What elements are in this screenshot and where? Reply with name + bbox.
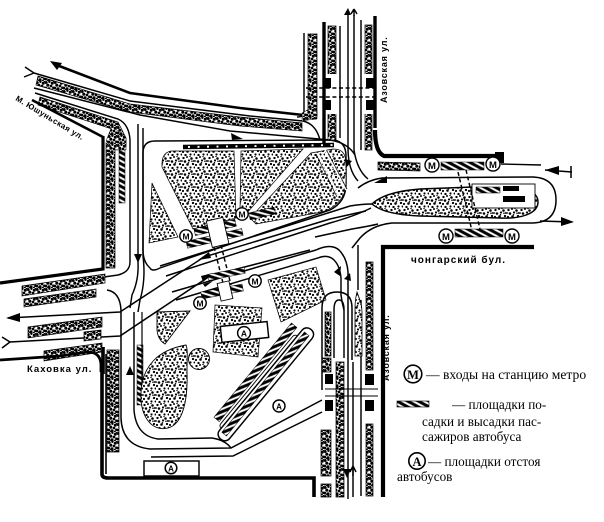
svg-text:М: М bbox=[238, 210, 245, 220]
svg-text:А: А bbox=[168, 465, 174, 474]
svg-text:А: А bbox=[412, 455, 421, 469]
svg-text:М: М bbox=[428, 161, 436, 172]
svg-text:Азовская ул.: Азовская ул. bbox=[381, 314, 391, 381]
svg-text:— входы на станцию метро: — входы на станцию метро bbox=[425, 367, 586, 382]
svg-text:М: М bbox=[407, 368, 419, 382]
svg-text:садки и высадки пас-: садки и высадки пас- bbox=[422, 414, 541, 429]
svg-text:Азовская ул.: Азовская ул. bbox=[379, 36, 389, 103]
svg-text:М: М bbox=[251, 277, 258, 287]
svg-text:М: М bbox=[442, 232, 450, 243]
svg-text:— площадки по-: — площадки по- bbox=[451, 397, 546, 412]
svg-text:Каховка ул.: Каховка ул. bbox=[27, 364, 92, 375]
svg-text:М: М bbox=[489, 160, 497, 171]
svg-text:М: М bbox=[508, 232, 516, 243]
svg-text:М: М bbox=[182, 232, 189, 242]
svg-text:чонгарский бул.: чонгарский бул. bbox=[411, 254, 506, 266]
svg-text:автобусов: автобусов bbox=[397, 469, 452, 484]
svg-text:А: А bbox=[241, 329, 247, 339]
svg-text:А: А bbox=[276, 403, 282, 412]
svg-text:М: М bbox=[196, 299, 203, 309]
svg-text:— площадки отстоя: — площадки отстоя bbox=[427, 454, 540, 469]
svg-text:сажиров автобуса: сажиров автобуса bbox=[422, 429, 521, 444]
